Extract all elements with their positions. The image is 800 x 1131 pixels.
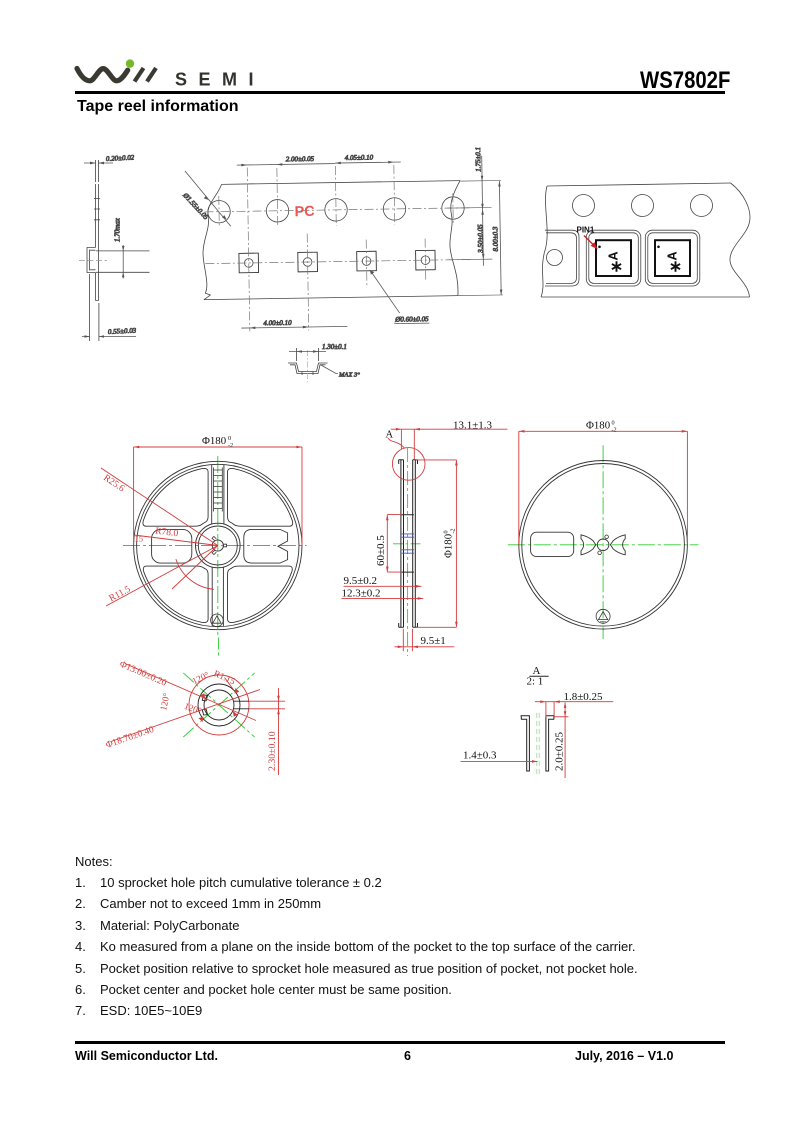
svg-text:MAX 3°: MAX 3°: [338, 372, 360, 379]
svg-text:3.50±0.05: 3.50±0.05: [476, 224, 484, 254]
svg-text:Φ13.00±0.20: Φ13.00±0.20: [118, 660, 168, 689]
svg-text:9.5±0.2: 9.5±0.2: [344, 575, 378, 587]
svg-text:120°: 120°: [190, 669, 211, 687]
svg-text:R11.5: R11.5: [108, 584, 133, 604]
svg-text:R78.0: R78.0: [155, 527, 179, 540]
svg-text:2.00±0.05: 2.00±0.05: [286, 155, 315, 163]
svg-text:1.75±0.1: 1.75±0.1: [474, 147, 482, 172]
svg-text:0.55±0.03: 0.55±0.03: [108, 326, 137, 335]
svg-text:1.30±0.1: 1.30±0.1: [322, 343, 347, 351]
svg-text:2.0±0.25: 2.0±0.25: [554, 731, 566, 771]
svg-text:1.70max: 1.70max: [114, 217, 122, 242]
svg-text:13.1±1.3: 13.1±1.3: [453, 420, 493, 432]
svg-text:0: 0: [612, 420, 615, 427]
svg-text:PIN1: PIN1: [577, 226, 595, 235]
svg-text:Φ18.70±0.40: Φ18.70±0.40: [105, 725, 156, 751]
svg-text:2: 1: 2: 1: [527, 676, 544, 688]
svg-text:Φ180: Φ180: [443, 534, 455, 558]
svg-text:120°: 120°: [183, 701, 204, 717]
svg-text:A: A: [666, 251, 680, 260]
svg-text:-2: -2: [450, 528, 457, 533]
svg-text:120°: 120°: [158, 692, 172, 712]
svg-text:12.3±0.2: 12.3±0.2: [342, 588, 381, 600]
svg-text:4.05±0.10: 4.05±0.10: [345, 153, 374, 161]
svg-text:0: 0: [228, 435, 231, 442]
svg-text:-2: -2: [612, 427, 617, 434]
svg-text:Ø0.60±0.05: Ø0.60±0.05: [394, 315, 429, 324]
svg-text:1.8±0.25: 1.8±0.25: [564, 691, 604, 703]
svg-text:60±0.5: 60±0.5: [375, 535, 387, 566]
svg-text:-2: -2: [228, 442, 233, 449]
svg-text:Φ180: Φ180: [586, 420, 610, 432]
svg-text:15: 15: [135, 534, 144, 544]
svg-text:8.00±0.3: 8.00±0.3: [491, 226, 499, 251]
svg-text:A: A: [386, 430, 394, 441]
svg-text:2.30±0.10: 2.30±0.10: [267, 731, 278, 771]
svg-text:4.00±0.10: 4.00±0.10: [263, 319, 292, 327]
svg-text:9.5±1: 9.5±1: [421, 635, 446, 647]
svg-text:Ø1.55±0.05: Ø1.55±0.05: [181, 191, 211, 222]
svg-text:A: A: [607, 251, 621, 260]
svg-text:0: 0: [443, 530, 450, 533]
svg-text:0.20±0.02: 0.20±0.02: [106, 153, 135, 162]
svg-text:1.4±0.3: 1.4±0.3: [463, 750, 497, 762]
svg-text:Φ180: Φ180: [202, 435, 226, 447]
svg-text:PC: PC: [294, 204, 315, 220]
